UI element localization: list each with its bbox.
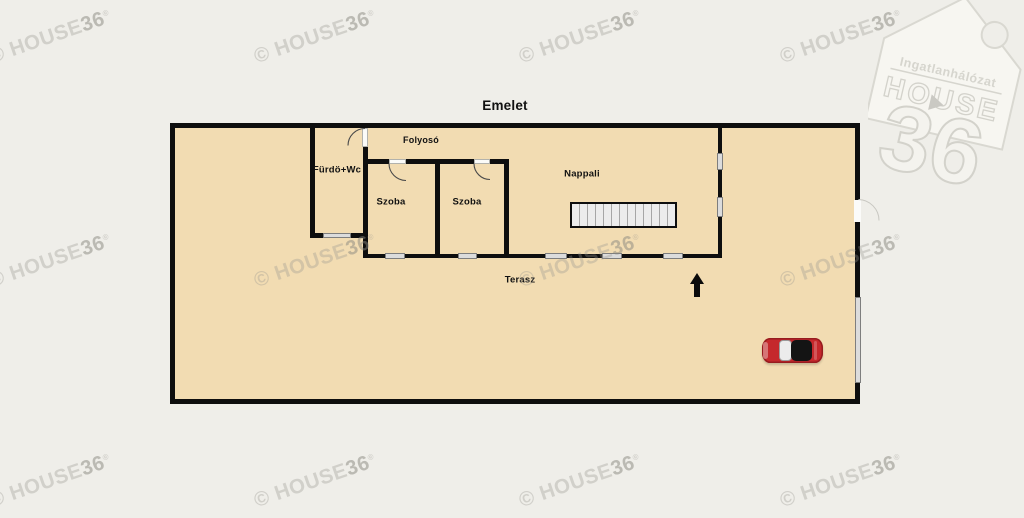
logo-network-text: Ingatlanhálózat [898, 55, 997, 91]
room-label-folyoso: Folyosó [403, 135, 439, 145]
floor-area [170, 123, 860, 404]
logo-pointer-triangle [928, 94, 945, 113]
car-rear-window [814, 341, 817, 360]
watermark-stamp: © HOUSE36® [0, 229, 114, 293]
window-livingroom-east-2 [717, 197, 723, 217]
wall-outer-bottom [170, 399, 860, 404]
wall-room-divider [435, 159, 440, 258]
door-bathroom [362, 128, 368, 147]
window-terrace-east [855, 297, 861, 383]
watermark-stamp: © HOUSE36® [777, 449, 905, 513]
room-label-nappali: Nappali [564, 169, 600, 180]
wall-outer-left [170, 123, 175, 404]
car-roof [791, 340, 812, 361]
window-livingroom-east-1 [717, 153, 723, 170]
staircase [570, 202, 677, 228]
watermark-stamp: © HOUSE36® [516, 449, 644, 513]
wall-corridor-seg1 [363, 159, 389, 164]
logo-number-text: 36 [870, 84, 993, 191]
logo-house-shape [868, 0, 1024, 150]
car-bumper [763, 342, 768, 359]
wall-room2-right [504, 159, 509, 258]
door-terrace-exit [854, 200, 861, 222]
watermark-stamp: © HOUSE36® [516, 5, 644, 69]
car-icon [762, 338, 823, 363]
door-room2 [474, 159, 490, 165]
house36-logo: Ingatlanhálózat HOUSE 36 [868, 0, 1024, 191]
door-room1 [389, 159, 406, 165]
logo-divider [890, 68, 1001, 94]
window-livingroom-2 [602, 253, 622, 259]
floorplan-drawing: Folyosó Fürdö+Wc Szoba Szoba Nappali Ter… [170, 123, 860, 404]
watermark-stamp: © HOUSE36® [251, 449, 379, 513]
wall-livingroom-right [718, 123, 723, 258]
wall-corridor-seg2 [406, 159, 474, 164]
door-arc-terrace-exit [859, 200, 880, 221]
logo-brand-text: HOUSE [881, 71, 1003, 129]
window-room1 [385, 253, 405, 259]
window-bathroom [323, 233, 351, 239]
wall-outer-top [170, 123, 860, 128]
window-livingroom-1 [545, 253, 567, 259]
watermark-stamp: © HOUSE36® [0, 5, 114, 69]
room-label-szoba-2: Szoba [453, 197, 482, 208]
room-label-szoba-1: Szoba [377, 197, 406, 208]
room-label-furdo-wc: Fürdö+Wc [313, 165, 361, 176]
entrance-arrow-icon [690, 273, 704, 297]
room-label-terasz: Terasz [505, 275, 536, 286]
window-room2 [458, 253, 477, 259]
watermark-stamp: © HOUSE36® [777, 5, 905, 69]
arrow-stem [694, 283, 700, 297]
page-title: Emelet [460, 98, 550, 113]
watermark-stamp: © HOUSE36® [0, 449, 114, 513]
watermark-stamp: © HOUSE36® [251, 5, 379, 69]
window-livingroom-3 [663, 253, 683, 259]
floorplan-page: Emelet [0, 0, 1024, 518]
logo-tag-hole [979, 19, 1010, 50]
wall-bathroom-left [310, 123, 315, 237]
